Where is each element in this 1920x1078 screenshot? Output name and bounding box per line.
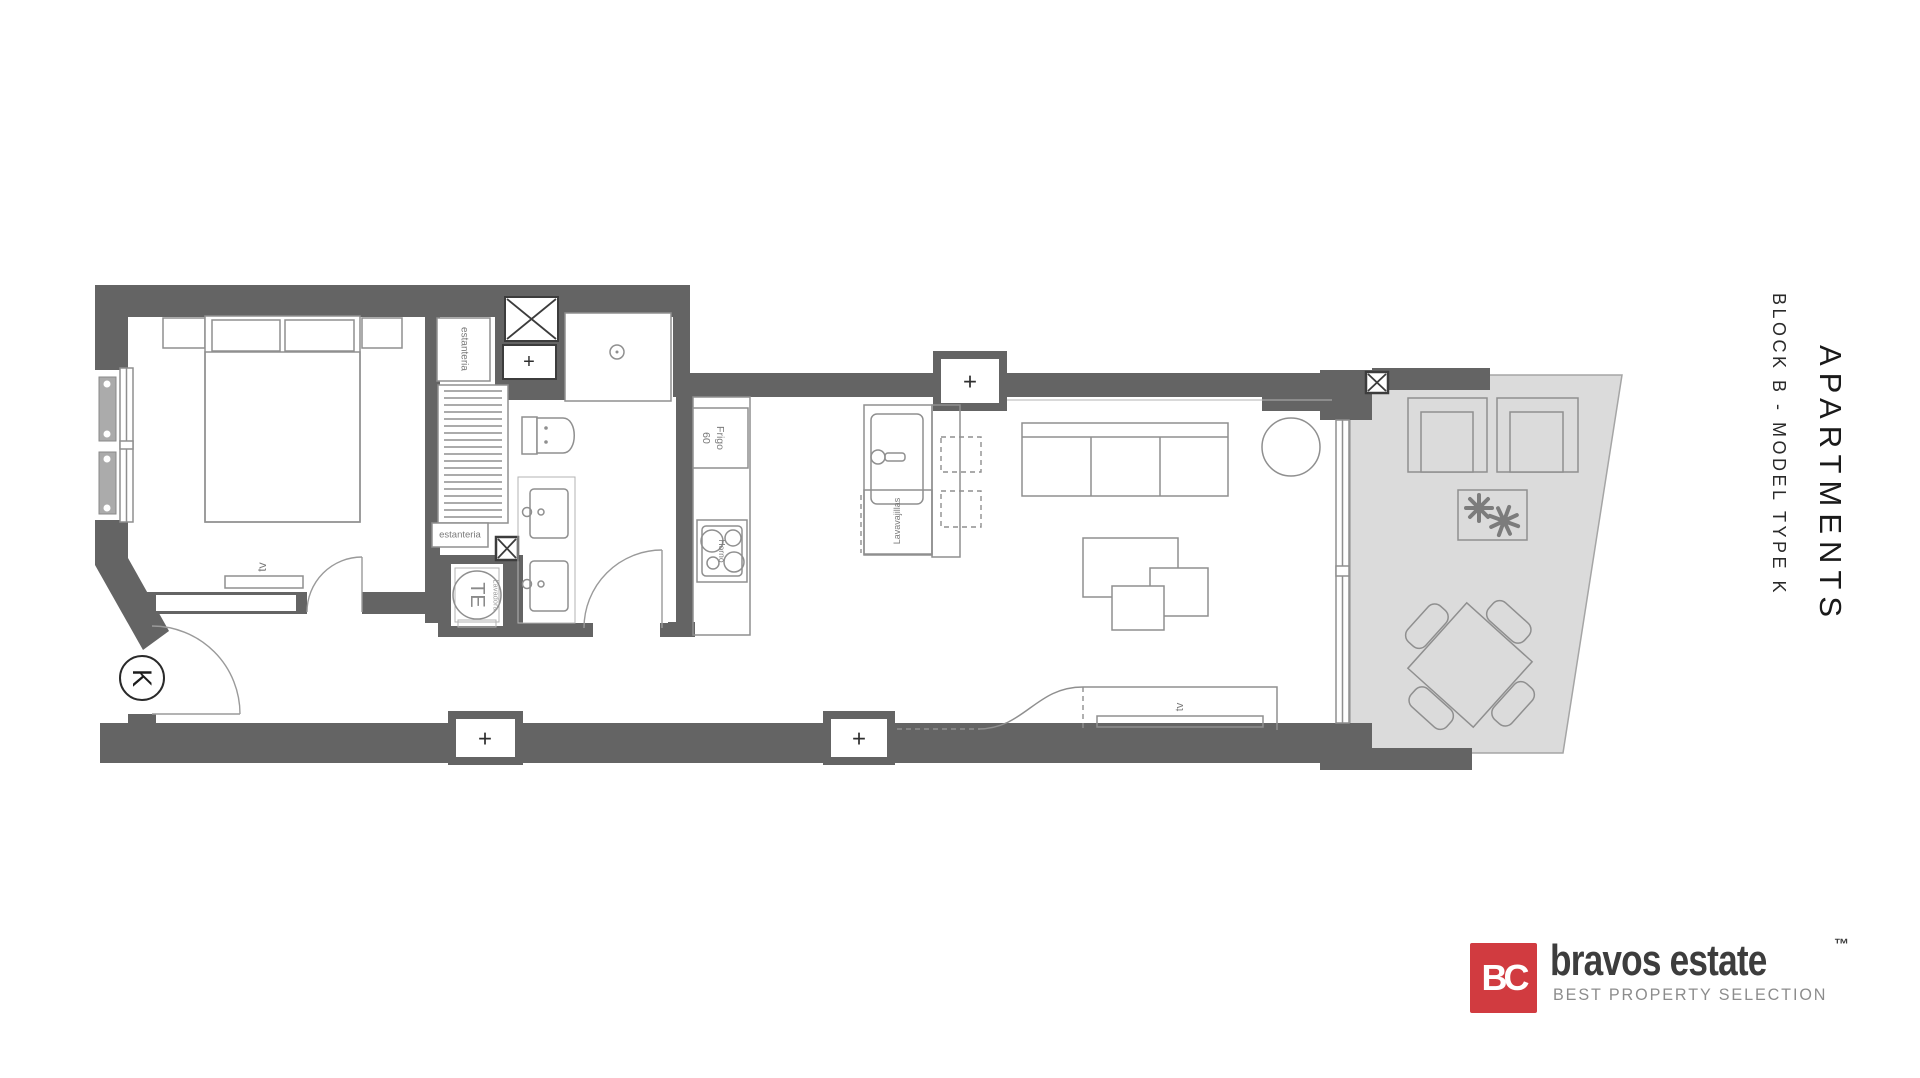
sun-lounger-2-seat bbox=[1510, 412, 1563, 472]
shutter-1-dot-a bbox=[104, 381, 111, 388]
bar-stool-2 bbox=[941, 491, 981, 527]
bedroom-tv-niche bbox=[156, 595, 296, 611]
basin-2-drain bbox=[538, 581, 544, 587]
bar-stool-1 bbox=[941, 437, 981, 472]
logo-monogram: BC bbox=[1482, 957, 1526, 999]
bedroom-tv-cabinet bbox=[225, 576, 303, 588]
sliding-door-junction bbox=[1336, 566, 1349, 576]
nightstand-left bbox=[163, 318, 205, 348]
entry-door-arc bbox=[152, 626, 240, 714]
sink-tap-spout bbox=[885, 453, 905, 461]
fridge-label-line2: 60 bbox=[700, 432, 712, 444]
sun-lounger-1-seat bbox=[1421, 412, 1473, 472]
shutter-2-dot-b bbox=[104, 505, 111, 512]
terrace-stub-top bbox=[1320, 370, 1372, 420]
vanity-basin-1 bbox=[530, 489, 568, 538]
window-joint bbox=[120, 441, 133, 449]
wall-bedroom-bottom-chunk bbox=[362, 592, 438, 614]
sink-tap bbox=[871, 450, 885, 464]
plant-1 bbox=[1466, 495, 1492, 521]
shelf-top-label: estanteria bbox=[459, 327, 470, 371]
pillar-plus-3: + bbox=[963, 369, 977, 396]
wall-top-left bbox=[95, 285, 690, 317]
washer-label: TE bbox=[466, 582, 488, 608]
bar-counter bbox=[932, 405, 960, 557]
wall-entry-step bbox=[128, 714, 156, 726]
toilet-tank bbox=[522, 417, 537, 454]
living-room: tv bbox=[897, 400, 1349, 730]
kitchen-island: Lavavajillas bbox=[861, 405, 981, 557]
oven-label: Horno bbox=[717, 539, 727, 562]
wall-kitchen-left bbox=[676, 397, 693, 637]
kitchen: Frigo60 Horno bbox=[693, 397, 750, 635]
bedroom-tv-label: tv bbox=[255, 562, 269, 571]
shutter-2-dot-a bbox=[104, 456, 111, 463]
vanity-basin-2 bbox=[530, 561, 568, 611]
page: + + + + tv bbox=[0, 0, 1920, 1078]
unit-key-letter: K bbox=[127, 669, 157, 687]
wall-kitchen-foot bbox=[668, 622, 695, 637]
living-tv-label: tv bbox=[1174, 702, 1186, 711]
bedroom: tv bbox=[99, 316, 402, 612]
toilet-hinge-a bbox=[544, 426, 548, 430]
wall-top-right bbox=[683, 373, 1340, 397]
shelf-bottom-label: estanteria bbox=[439, 530, 481, 541]
nightstand-right bbox=[362, 318, 402, 348]
vanity-counter bbox=[518, 477, 575, 623]
logo-trademark-icon: ™ bbox=[1834, 936, 1849, 953]
shower-drain-dot bbox=[616, 351, 619, 354]
dishwasher-label: Lavavajillas bbox=[892, 497, 902, 544]
terrace-wall-bottom bbox=[1345, 748, 1472, 770]
toilet-hinge-b bbox=[544, 440, 548, 444]
wall-left-lower bbox=[95, 520, 128, 560]
bed bbox=[205, 316, 360, 522]
coffee-table-3 bbox=[1112, 586, 1164, 630]
sofa bbox=[1022, 423, 1228, 496]
logo-tagline: BEST PROPERTY SELECTION bbox=[1553, 985, 1827, 1005]
shutter-1-dot-b bbox=[104, 431, 111, 438]
basin-1-drain bbox=[538, 509, 544, 515]
media-curve bbox=[978, 687, 1083, 729]
round-table bbox=[1262, 418, 1320, 476]
bedroom-door-arc bbox=[307, 557, 362, 612]
shower bbox=[565, 313, 671, 401]
logo-name: bravos estate bbox=[1550, 936, 1767, 986]
toilet-bowl bbox=[537, 418, 574, 453]
shaft-plus: + bbox=[523, 351, 535, 373]
terrace-band-top bbox=[1372, 368, 1490, 390]
plan-subtitle: BLOCK B - MODEL TYPE K bbox=[1770, 293, 1788, 596]
logo-mark: BC bbox=[1470, 943, 1537, 1013]
plan-title: APARTMENTS bbox=[1815, 345, 1846, 624]
fridge-label-line1: Frigo bbox=[714, 426, 726, 450]
bathroom-door-arc bbox=[584, 550, 662, 628]
pillar-plus-1: + bbox=[478, 726, 492, 753]
wall-left-upper bbox=[95, 285, 128, 370]
wall-bottom bbox=[100, 723, 1345, 763]
pillar-plus-2: + bbox=[852, 726, 866, 753]
washer-small-label: Lavadora bbox=[492, 579, 501, 611]
floor-plan: + + + + tv bbox=[0, 0, 1920, 1078]
